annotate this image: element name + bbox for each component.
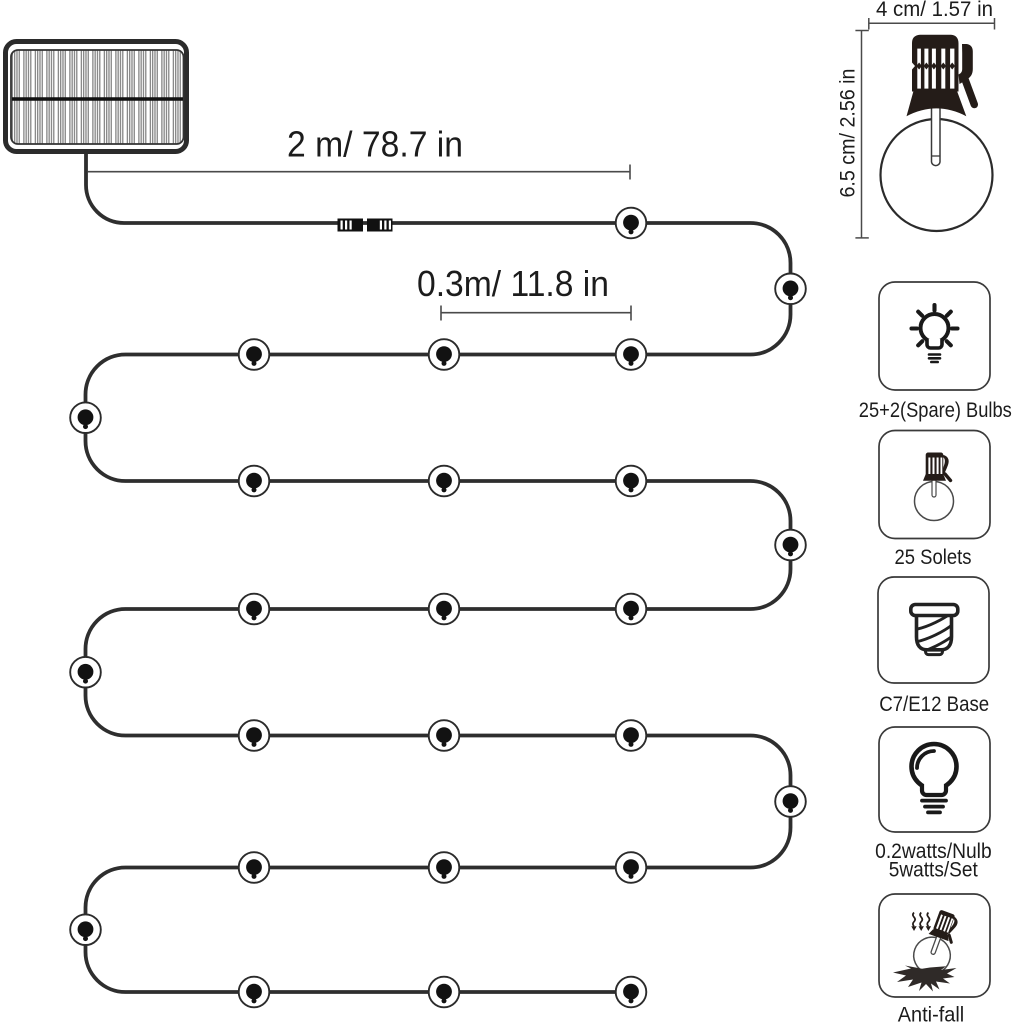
svg-text:2 m/ 78.7 in: 2 m/ 78.7 in (287, 124, 463, 165)
svg-text:6.5 cm/ 2.56 in: 6.5 cm/ 2.56 in (837, 69, 860, 198)
svg-text:5watts/Set: 5watts/Set (889, 858, 978, 882)
svg-text:0.3m/ 11.8 in: 0.3m/ 11.8 in (417, 263, 609, 304)
svg-text:Anti-fall: Anti-fall (898, 1003, 965, 1024)
svg-text:4 cm/ 1.57 in: 4 cm/ 1.57 in (876, 0, 993, 21)
svg-text:C7/E12 Base: C7/E12 Base (879, 692, 989, 716)
svg-text:25+2(Spare) Bulbs: 25+2(Spare) Bulbs (859, 398, 1012, 422)
svg-text:25 Solets: 25 Solets (895, 545, 972, 569)
